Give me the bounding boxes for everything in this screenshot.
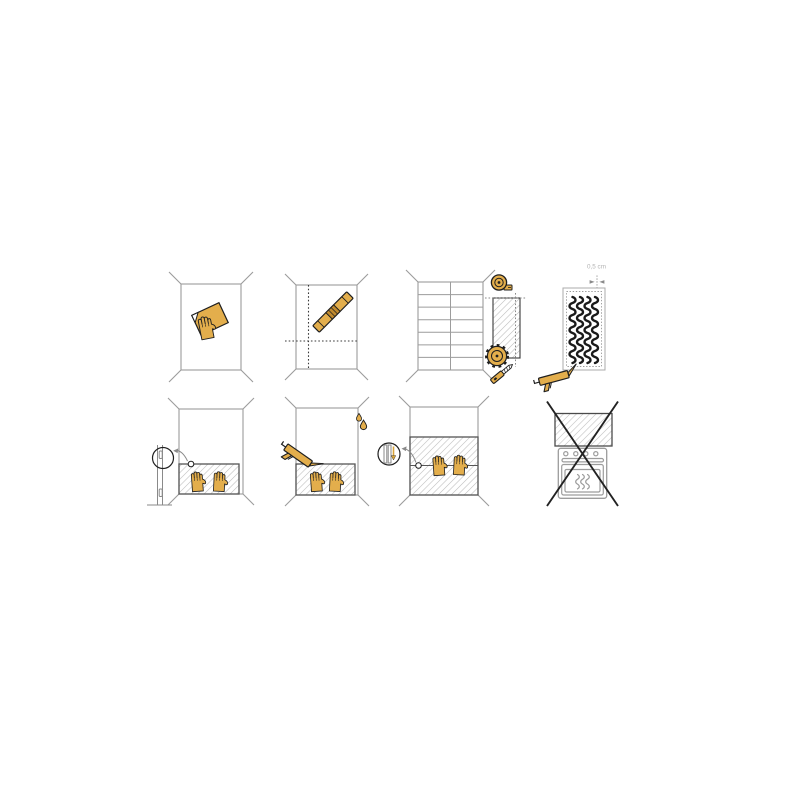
circular-saw-icon — [486, 345, 508, 367]
joint-profile — [384, 445, 387, 463]
tiled-wall — [406, 270, 495, 382]
joint-marker-circle — [416, 463, 422, 469]
instruction-sheet: 0,5 cm — [0, 0, 800, 800]
mounted-panel — [179, 464, 239, 494]
oven-handle — [562, 459, 604, 462]
step-4-apply-adhesive: 0,5 cm — [545, 255, 665, 395]
step-2-mark-guide-lines — [280, 255, 400, 395]
step-3-measure-and-cut — [400, 255, 540, 395]
spacer-strip — [147, 445, 172, 505]
joint-detail-circle — [378, 443, 400, 465]
measurement-arrows — [590, 276, 605, 290]
mounted-panel — [296, 464, 355, 495]
step-7-join-upper-panel — [375, 395, 505, 530]
water-drop-icon — [360, 420, 366, 430]
spacer-clip — [159, 489, 162, 497]
spacer-clip — [159, 451, 162, 459]
step-8-no-stove — [530, 395, 650, 530]
step-1-clean-wall — [160, 255, 280, 395]
joint-profile — [388, 445, 391, 463]
wall-frame — [285, 274, 368, 380]
measuring-tape-icon — [491, 275, 512, 290]
spacer-marker-circle — [188, 461, 194, 467]
oven-icon — [558, 448, 606, 498]
step-5-set-panel-on-spacers — [140, 395, 270, 530]
measurement-label: 0,5 cm — [587, 264, 606, 271]
hatched-panel — [555, 414, 612, 447]
